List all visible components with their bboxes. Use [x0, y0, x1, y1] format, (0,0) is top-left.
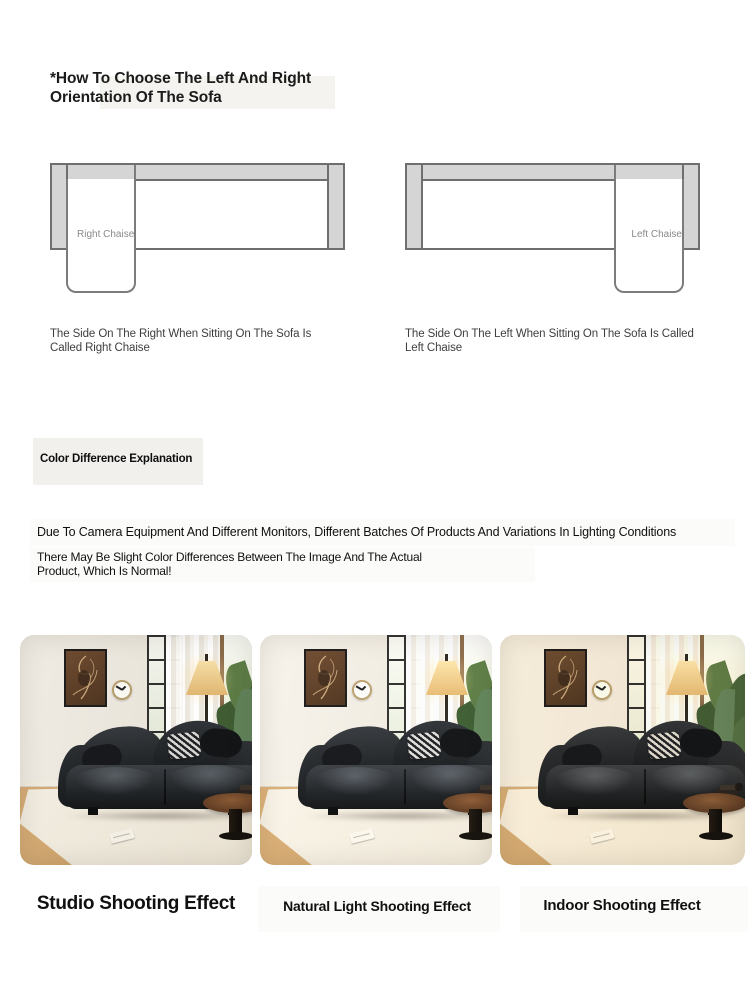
studio-shooting-label: Studio Shooting Effect [20, 893, 252, 915]
right-chaise-caption: The Side On The Right When Sitting On Th… [50, 327, 346, 356]
floor-lamp-finial [445, 654, 448, 662]
product-detail-section: *How To Choose The Left And Right Orient… [0, 0, 750, 985]
living-room-scene [500, 635, 745, 865]
coffee-table [203, 783, 252, 847]
coffee-table [443, 783, 492, 847]
houndstooth-pillow [647, 731, 682, 760]
coffee-table [683, 783, 745, 847]
houndstooth-pillow [407, 731, 442, 760]
natural-light-shooting-photo [260, 635, 492, 865]
floor-lamp-finial [685, 654, 688, 662]
color-difference-line1: Due To Camera Equipment And Different Mo… [37, 525, 676, 539]
wall-clock [112, 680, 132, 700]
armrest [682, 165, 698, 248]
right-chaise-diagram: Right Chaise [50, 163, 345, 295]
floor-lamp-finial [205, 654, 208, 662]
chaise-label: Right Chaise [77, 229, 134, 240]
living-room-scene [20, 635, 252, 865]
wall-clock [592, 680, 612, 700]
wall-art [544, 649, 587, 707]
houndstooth-pillow [167, 731, 202, 760]
chaise-label: Left Chaise [631, 229, 682, 240]
armrest [407, 165, 423, 248]
indoor-shooting-label: Indoor Shooting Effect [498, 897, 746, 914]
left-chaise-diagram: Left Chaise [405, 163, 700, 295]
indoor-shooting-photo [500, 635, 745, 865]
armrest [327, 165, 343, 248]
wall-clock [352, 680, 372, 700]
left-chaise-caption: The Side On The Left When Sitting On The… [405, 327, 701, 356]
natural-light-shooting-label: Natural Light Shooting Effect [258, 898, 496, 914]
orientation-title: *How To Choose The Left And Right Orient… [50, 70, 360, 107]
studio-shooting-photo [20, 635, 252, 865]
color-difference-heading: Color Difference Explanation [40, 453, 192, 465]
color-difference-line2: There May Be Slight Color Differences Be… [37, 550, 453, 579]
living-room-scene [260, 635, 492, 865]
wall-art [304, 649, 347, 707]
wall-art [64, 649, 107, 707]
